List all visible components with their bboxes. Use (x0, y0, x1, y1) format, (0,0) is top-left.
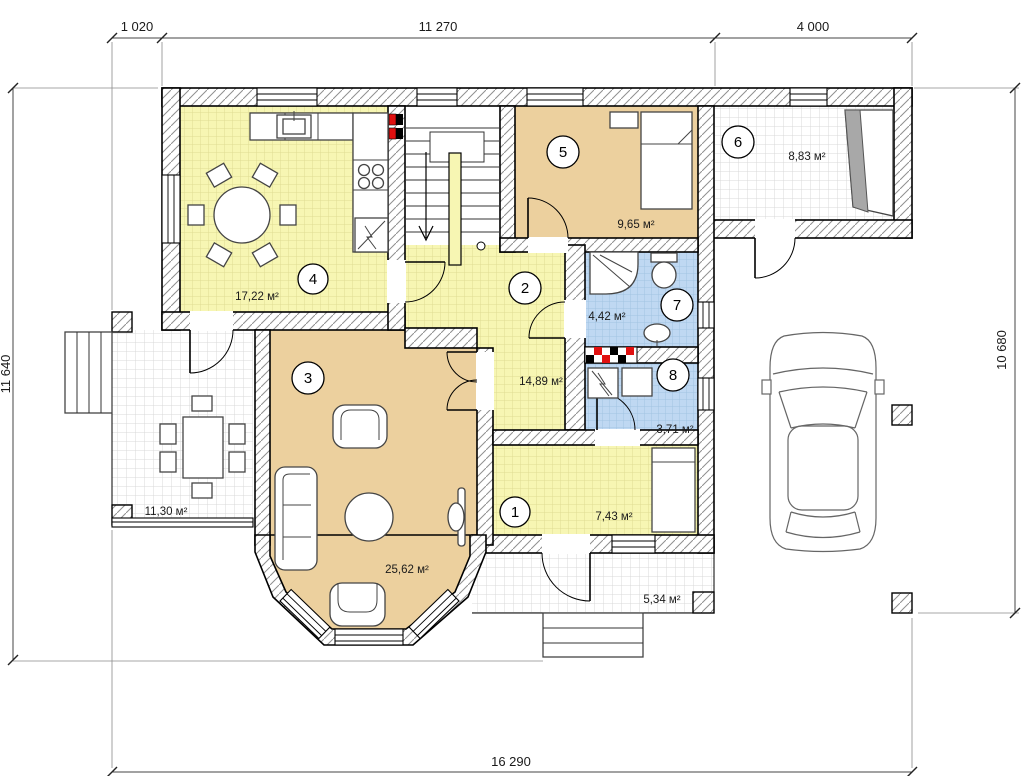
room-6-number: 6 (734, 134, 742, 151)
car (762, 333, 884, 552)
dim-top-3: 4 000 (797, 19, 830, 34)
room-8-number: 8 (669, 367, 677, 384)
room-4-area: 17,22 м² (235, 291, 279, 303)
room-3-area: 25,62 м² (385, 564, 429, 576)
coffee-table (345, 493, 393, 541)
bedroom5-window (527, 88, 583, 106)
terrace-chair (229, 424, 245, 444)
stove-burner (373, 165, 384, 176)
toilet-tank (651, 253, 677, 262)
dining-table (214, 187, 270, 243)
room-5-area: 9,65 м² (617, 219, 654, 231)
washing-machine (588, 368, 618, 398)
room-1-area: 7,43 м² (595, 511, 632, 523)
terrace-area: 11,30 м² (145, 506, 188, 518)
terrace-chair (192, 396, 212, 411)
dim-top-1: 1 020 (121, 19, 154, 34)
stair-window (417, 88, 457, 106)
terrace-table (183, 417, 223, 478)
terrace-chair (160, 424, 176, 444)
room1-window (612, 535, 655, 553)
dim-top-2: 11 270 (419, 19, 458, 34)
kitchen-window (257, 88, 317, 106)
stove-burner (373, 178, 384, 189)
room-2-number: 2 (521, 280, 529, 297)
room-3-number: 3 (304, 370, 312, 387)
floor-plan: 1 020 11 270 4 000 16 290 11 640 10 680 (0, 0, 1024, 776)
room-5-number: 5 (559, 144, 567, 161)
room6-window (790, 88, 827, 106)
bed-single (652, 448, 695, 532)
kitchen-side-window (162, 175, 180, 243)
sofa (275, 467, 317, 570)
toilet-bowl (652, 262, 676, 288)
porch-area: 5,34 м² (643, 594, 680, 606)
room6-door (755, 238, 795, 278)
carport-column (892, 593, 912, 613)
terrace-chair (192, 483, 212, 498)
room-2-area: 14,89 м² (519, 376, 563, 388)
utility-window (698, 378, 714, 410)
boiler (622, 368, 652, 396)
bed (641, 112, 692, 209)
nightstand (610, 112, 638, 128)
stair-stringer (449, 153, 461, 265)
dim-right: 10 680 (994, 330, 1009, 370)
room-7-area: 4,42 м² (588, 311, 625, 323)
room-6-area: 8,83 м² (788, 151, 825, 163)
entry-steps (543, 613, 643, 657)
room-4-number: 4 (309, 271, 317, 288)
terrace-chair (229, 452, 245, 472)
stove-burner (359, 178, 370, 189)
porch-column (693, 592, 714, 613)
bay-window (335, 629, 403, 645)
dim-left: 11 640 (0, 355, 13, 394)
stove-burner (359, 165, 370, 176)
room-1-number: 1 (511, 504, 519, 521)
room-7-number: 7 (673, 297, 681, 314)
dim-bottom: 16 290 (491, 754, 531, 769)
floor-plan-drawing: 1 020 11 270 4 000 16 290 11 640 10 680 (0, 0, 1024, 776)
terrace-rail (112, 518, 253, 527)
terrace-column (112, 312, 132, 332)
sink (644, 324, 670, 342)
terrace-chair (160, 452, 176, 472)
room-8-area: 3,71 м² (656, 424, 693, 436)
bathroom-window (698, 302, 714, 328)
carport-column (892, 405, 912, 425)
